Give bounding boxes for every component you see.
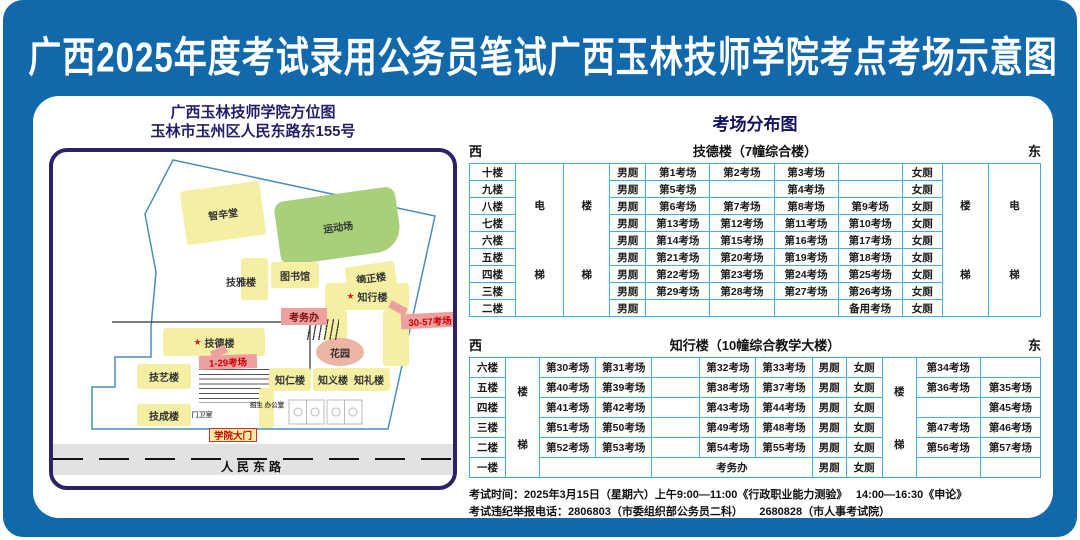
exam-room-cell: 第14考场	[646, 232, 710, 249]
floor-row: 十楼电梯楼梯男厕第1考场第2考场第3考场女厕楼梯电梯	[470, 164, 1041, 181]
exam-room-cell: 男厕	[812, 458, 846, 478]
empty-cell	[710, 181, 774, 198]
exam-room-cell: 第35考场	[980, 378, 1040, 398]
exam-room-cell: 第51考场	[540, 418, 596, 438]
map-heading: 广西玉林技师学院方位图 玉林市玉州区人民东路东155号	[47, 104, 459, 142]
exam-room-cell: 第29考场	[646, 283, 710, 300]
poster-title: 广西2025年度考试录用公务员笔试广西玉林技师学院考点考场示意图	[3, 24, 1080, 84]
floor-label: 六楼	[470, 232, 516, 249]
empty-cell	[540, 458, 652, 478]
empty-cell	[838, 181, 902, 198]
exam-room-cell: 男厕	[610, 164, 646, 181]
exam-room-cell: 第42考场	[596, 398, 652, 418]
stairwell-column: 楼梯	[564, 164, 610, 317]
empty-cell	[652, 438, 700, 458]
exam-room-cell: 考务办	[652, 458, 812, 478]
exam-room-cell: 第20考场	[710, 249, 774, 266]
exam-room-cell: 第7考场	[710, 198, 774, 215]
exam-room-cell: 第21考场	[646, 249, 710, 266]
building-label: 图书馆	[280, 268, 310, 283]
empty-cell	[774, 300, 838, 317]
exam-room-cell: 男厕	[812, 378, 846, 398]
exam-room-cell: 女厕	[846, 418, 882, 438]
exam-room-cell: 男厕	[812, 398, 846, 418]
exam-room-cell: 第52考场	[540, 438, 596, 458]
floor-row: 二楼第52考场第53考场第54考场第55考场男厕女厕第56考场第57考场	[470, 438, 1041, 458]
exam-room-cell: 男厕	[610, 198, 646, 215]
exam-room-cell: 男厕	[812, 358, 846, 378]
exam-room-cell: 第56考场	[916, 438, 980, 458]
distribution-tables: 西技德楼（7幢综合楼）东十楼电梯楼梯男厕第1考场第2考场第3考场女厕楼梯电梯九楼…	[469, 141, 1041, 478]
poster-frame: 广西2025年度考试录用公务员笔试广西玉林技师学院考点考场示意图 广西玉林技师学…	[3, 0, 1077, 537]
empty-cell	[980, 458, 1040, 478]
exam-room-cell: 第27考场	[774, 283, 838, 300]
exam-room-cell: 男厕	[812, 438, 846, 458]
table-direction-header: 西技德楼（7幢综合楼）东	[469, 141, 1041, 160]
building-label: 技成楼	[149, 408, 179, 423]
stairwell-column: 电梯	[988, 164, 1040, 317]
exam-room-cell: 第30考场	[540, 358, 596, 378]
exam-room-cell: 女厕	[846, 378, 882, 398]
building-label: 智辛堂	[207, 203, 239, 222]
exam-room-cell: 女厕	[902, 181, 942, 198]
exam-room-cell: 第50考场	[596, 418, 652, 438]
floor-row: 四楼第41考场第42考场第43考场第44考场男厕女厕第45考场	[470, 398, 1041, 418]
exam-room-cell: 第46考场	[980, 418, 1040, 438]
exam-room-cell: 第54考场	[700, 438, 756, 458]
exam-room-cell: 第45考场	[980, 398, 1040, 418]
exam-room-cell: 第19考场	[774, 249, 838, 266]
floor-label: 六楼	[470, 358, 506, 378]
exam-room-cell: 第3考场	[774, 164, 838, 181]
exam-room-cell: 女厕	[846, 438, 882, 458]
exam-room-cell: 男厕	[610, 181, 646, 198]
table-direction-header: 西知行楼（10幢综合教学大楼）东	[469, 335, 1041, 354]
exam-room-cell: 女厕	[846, 358, 882, 378]
exam-room-cell: 第22考场	[646, 266, 710, 283]
exam-room-cell: 第32考场	[700, 358, 756, 378]
exam-room-cell: 第49考场	[700, 418, 756, 438]
empty-cell	[710, 300, 774, 317]
campus-gate-label: 学院大门	[209, 428, 257, 442]
exam-room-cell: 第28考场	[710, 283, 774, 300]
empty-cell	[646, 300, 710, 317]
exam-room-cell: 男厕	[610, 283, 646, 300]
rooms-30-57-callout: 30-57考场	[401, 311, 457, 329]
building-label: 知仁楼	[275, 372, 305, 387]
exam-room-cell: 第18考场	[838, 249, 902, 266]
building-label: 知行楼	[358, 289, 388, 304]
floor-label: 三楼	[470, 283, 516, 300]
map-building-jichenglou: 技成楼	[137, 404, 191, 426]
map-garden: 花园	[316, 338, 364, 366]
exam-room-cell: 第53考场	[596, 438, 652, 458]
building-label: 知义楼	[318, 372, 348, 387]
floor-label: 七楼	[470, 215, 516, 232]
map-building-zhirenlou: 知仁楼	[269, 368, 311, 391]
stairwell-column: 楼梯	[506, 358, 540, 478]
exam-room-cell: 第39考场	[596, 378, 652, 398]
exam-room-cell: 第11考场	[774, 215, 838, 232]
exam-room-cell: 备用考场	[838, 300, 902, 317]
guard-room-label: 门卫室	[185, 410, 219, 420]
exam-room-cell: 女厕	[902, 164, 942, 181]
east-label: 东	[1028, 335, 1041, 354]
exam-room-cell: 女厕	[902, 232, 942, 249]
empty-cell	[652, 418, 700, 438]
exam-room-cell: 第15考场	[710, 232, 774, 249]
floor-row: 六楼楼梯第30考场第31考场第32考场第33考场男厕女厕楼梯第34考场	[470, 358, 1041, 378]
distribution-title: 考场分布图	[469, 110, 1041, 135]
building-label: 知礼楼	[354, 372, 384, 387]
empty-cell	[652, 378, 700, 398]
building-title: 技德楼（7幢综合楼）	[693, 141, 817, 160]
exam-room-cell: 第23考场	[710, 266, 774, 283]
map-building-jiyilou: 技艺楼	[137, 364, 191, 389]
exam-room-cell: 第47考场	[916, 418, 980, 438]
exam-room-cell: 男厕	[610, 232, 646, 249]
building-label-jiyalou: 技雅楼	[213, 274, 269, 289]
exam-room-table: 十楼电梯楼梯男厕第1考场第2考场第3考场女厕楼梯电梯九楼男厕第5考场第4考场女厕…	[469, 163, 1041, 317]
exam-room-cell: 男厕	[610, 249, 646, 266]
building-label: 运动场	[322, 216, 354, 235]
footer-info: 考试时间：2025年3月15日（星期六）上午9:00—11:00《行政职业能力测…	[469, 487, 1041, 521]
floor-label: 一楼	[470, 458, 506, 478]
exam-time-line: 考试时间：2025年3月15日（星期六）上午9:00—11:00《行政职业能力测…	[469, 487, 1041, 504]
content-card: 广西玉林技师学院方位图 玉林市玉州区人民东路东155号	[33, 96, 1053, 518]
exam-room-cell: 男厕	[610, 215, 646, 232]
exam-room-cell: 第4考场	[774, 181, 838, 198]
exam-room-cell: 第10考场	[838, 215, 902, 232]
exam-room-cell: 第55考场	[756, 438, 812, 458]
exam-room-cell: 第57考场	[980, 438, 1040, 458]
map-heading-line2: 玉林市玉州区人民东路东155号	[47, 123, 459, 142]
exam-room-cell: 第37考场	[756, 378, 812, 398]
report-phone-line: 考试违纪举报电话：2806803（市委组织部公务员二科） 2680828（市人事…	[469, 504, 1041, 521]
garden-label: 花园	[330, 345, 350, 360]
stairwell-column: 电梯	[516, 164, 564, 317]
floor-label: 二楼	[470, 300, 516, 317]
exam-office-callout: 考务办	[281, 308, 327, 325]
empty-cell	[980, 358, 1040, 378]
floor-label: 五楼	[470, 378, 506, 398]
exam-room-cell: 第43考场	[700, 398, 756, 418]
floor-label: 十楼	[470, 164, 516, 181]
star-icon: ★	[193, 337, 201, 348]
basketball-courts	[289, 400, 362, 424]
exam-room-cell: 第38考场	[700, 378, 756, 398]
empty-cell	[652, 358, 700, 378]
road-name-label: 人民东路	[53, 458, 453, 475]
exam-room-cell: 第12考场	[710, 215, 774, 232]
west-label: 西	[469, 335, 482, 354]
exam-room-cell: 女厕	[902, 198, 942, 215]
exam-room-cell: 第34考场	[916, 358, 980, 378]
exam-room-cell: 女厕	[902, 249, 942, 266]
exam-room-cell: 男厕	[610, 266, 646, 283]
building-title: 知行楼（10幢综合教学大楼）	[670, 335, 840, 354]
floor-label: 九楼	[470, 181, 516, 198]
stairwell-column: 楼梯	[942, 164, 988, 317]
exam-room-cell: 第13考场	[646, 215, 710, 232]
floor-label: 四楼	[470, 266, 516, 283]
building-label: 技艺楼	[149, 369, 179, 384]
exam-room-cell: 第33考场	[756, 358, 812, 378]
map-building-zhiyilou: 知义楼	[313, 368, 353, 391]
floor-label: 八楼	[470, 198, 516, 215]
empty-cell	[652, 398, 700, 418]
floor-label: 三楼	[470, 418, 506, 438]
west-label: 西	[469, 141, 482, 160]
exam-room-cell: 第36考场	[916, 378, 980, 398]
floor-label: 二楼	[470, 438, 506, 458]
distribution-panel: 考场分布图 西技德楼（7幢综合楼）东十楼电梯楼梯男厕第1考场第2考场第3考场女厕…	[469, 102, 1041, 521]
exam-room-cell: 第5考场	[646, 181, 710, 198]
map-building-zhixintang: 智辛堂	[180, 181, 267, 246]
exam-room-cell: 女厕	[902, 215, 942, 232]
exam-room-cell: 第24考场	[774, 266, 838, 283]
star-icon: ★	[346, 291, 354, 302]
exam-room-cell: 第48考场	[756, 418, 812, 438]
floor-label: 五楼	[470, 249, 516, 266]
campus-map: 智辛堂 运动场 技雅楼 图书馆 德正楼 ★知行楼 考务办 30-57考场 ★技德…	[49, 148, 457, 490]
rooms-1-29-callout: 1-29考场	[199, 354, 257, 370]
exam-room-cell: 女厕	[902, 283, 942, 300]
empty-cell	[916, 458, 980, 478]
exam-room-cell: 第9考场	[838, 198, 902, 215]
exam-room-cell: 第25考场	[838, 266, 902, 283]
exam-room-cell: 男厕	[812, 418, 846, 438]
map-heading-line1: 广西玉林技师学院方位图	[47, 104, 459, 123]
stairwell-column: 楼梯	[882, 358, 916, 478]
floor-row: 三楼第51考场第50考场第49考场第48考场男厕女厕第47考场第46考场	[470, 418, 1041, 438]
exam-room-cell: 女厕	[846, 458, 882, 478]
map-building-zhililou: 知礼楼	[348, 368, 390, 391]
exam-room-cell: 女厕	[902, 266, 942, 283]
floor-row: 五楼第40考场第39考场第38考场第37考场男厕女厕第36考场第35考场	[470, 378, 1041, 398]
exam-room-cell: 第16考场	[774, 232, 838, 249]
exam-room-cell: 第6考场	[646, 198, 710, 215]
floor-row: 一楼考务办男厕女厕	[470, 458, 1041, 478]
map-building-library: 图书馆	[271, 262, 319, 288]
exam-room-cell: 第2考场	[710, 164, 774, 181]
exam-room-cell: 第40考场	[540, 378, 596, 398]
exam-room-cell: 第41考场	[540, 398, 596, 418]
exam-room-cell: 男厕	[610, 300, 646, 317]
exam-room-cell: 第31考场	[596, 358, 652, 378]
exam-room-cell: 第17考场	[838, 232, 902, 249]
exam-room-cell: 女厕	[902, 300, 942, 317]
east-label: 东	[1028, 141, 1041, 160]
exam-room-cell: 第1考场	[646, 164, 710, 181]
exam-room-cell: 第8考场	[774, 198, 838, 215]
exam-room-cell: 第44考场	[756, 398, 812, 418]
exam-room-cell: 女厕	[846, 398, 882, 418]
exam-room-cell: 第26考场	[838, 283, 902, 300]
admissions-office-label: 招生 办公室	[247, 402, 287, 409]
exam-room-table: 六楼楼梯第30考场第31考场第32考场第33考场男厕女厕楼梯第34考场五楼第40…	[469, 357, 1041, 478]
floor-label: 四楼	[470, 398, 506, 418]
empty-cell	[916, 398, 980, 418]
empty-cell	[838, 164, 902, 181]
